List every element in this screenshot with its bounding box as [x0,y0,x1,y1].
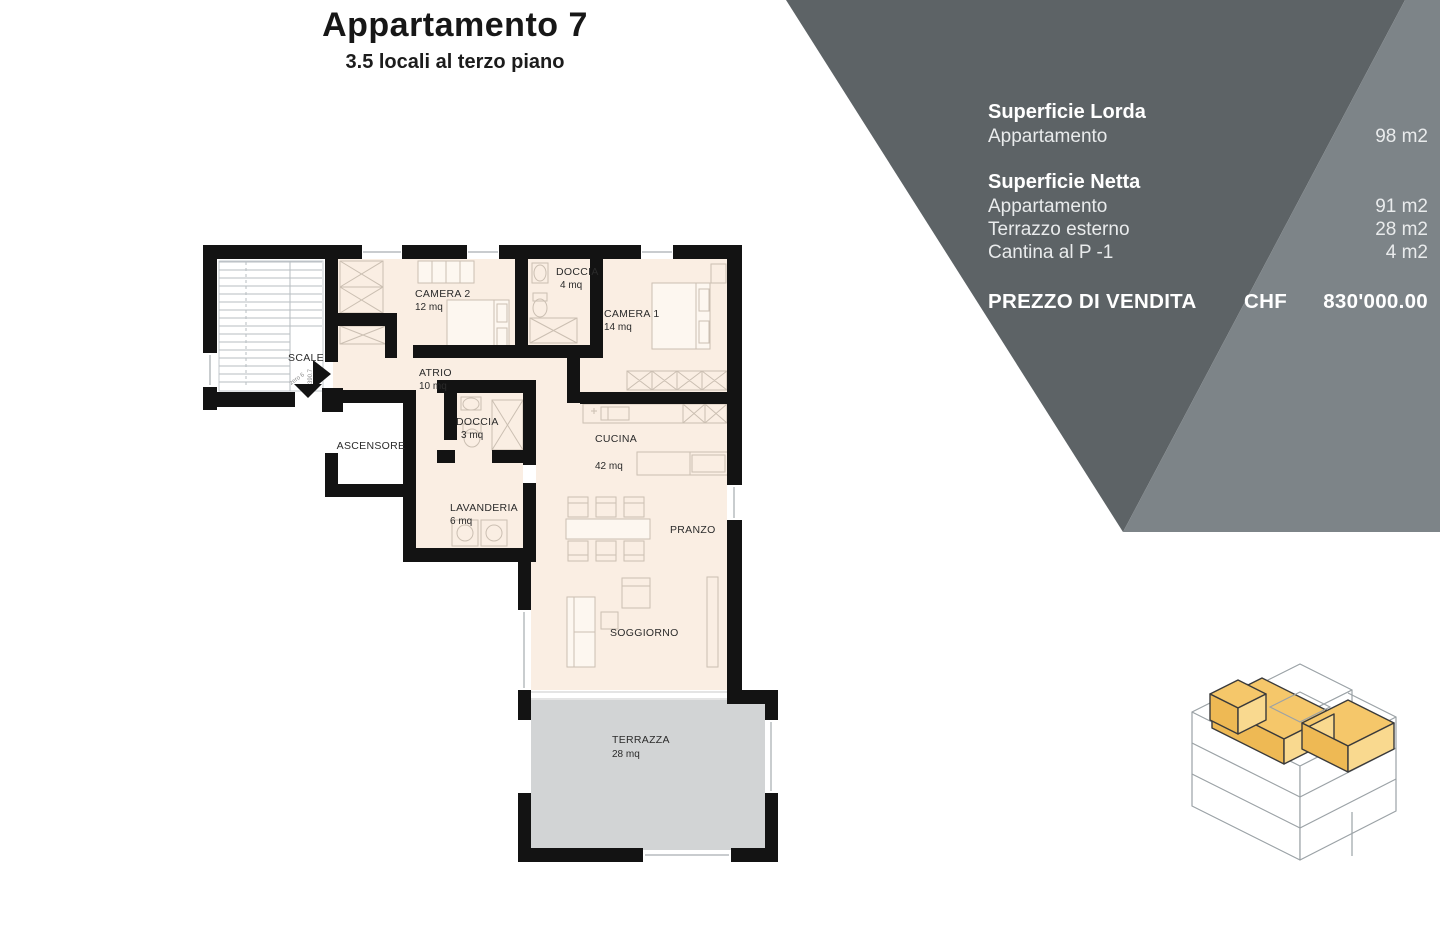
label-lavanderia-area: 6 mq [450,516,472,527]
row-value: 98 m2 [1375,126,1428,148]
price-label: PREZZO DI VENDITA [988,291,1197,313]
price-amount: 830'000.00 [1323,291,1428,313]
row-value: 4 m2 [1386,242,1428,264]
label-lavanderia: LAVANDERIA [450,502,518,514]
terrace-floor [531,700,765,850]
label-camera1: CAMERA 1 [604,308,660,320]
label-doccia3: DOCCIA [456,416,499,428]
page-title: Appartamento 7 [235,6,675,45]
label-camera2-area: 12 mq [415,302,443,313]
label-doccia4: DOCCIA [556,266,599,278]
row-label: Appartamento [988,196,1107,218]
price-currency: CHF [1244,291,1287,313]
floor-plan: SCALE ASCENSORE CAMERA 2 12 mq DOCCIA 4 … [203,245,778,862]
price-row: PREZZO DI VENDITA CHF 830'000.00 [988,291,1428,313]
page-subtitle: 3.5 locali al terzo piano [235,51,675,74]
row-cantina: Cantina al P -1 4 m2 [988,242,1428,264]
label-atrio-area: 10 mq [419,381,447,392]
label-atrio: ATRIO [419,367,452,379]
row-lorda-appartamento: Appartamento 98 m2 [988,126,1428,148]
quota-note-1: 390.7 [308,368,314,384]
title-block: Appartamento 7 3.5 locali al terzo piano [235,6,675,74]
row-terrazzo-esterno: Terrazzo esterno 28 m2 [988,219,1428,241]
label-pranzo: PRANZO [670,524,716,536]
info-panel-shape [786,0,1440,532]
header-lorda-label: Superficie Lorda [988,101,1146,123]
label-terrazza: TERRAZZA [612,734,670,746]
row-value: 28 m2 [1375,219,1428,241]
label-terrazza-area: 28 mq [612,749,640,760]
label-soggiorno: SOGGIORNO [610,627,679,639]
label-ascensore: ASCENSORE [337,440,406,452]
row-label: Appartamento [988,126,1107,148]
row-netta-appartamento: Appartamento 91 m2 [988,196,1428,218]
label-doccia4-area: 4 mq [560,280,582,291]
row-label: Cantina al P -1 [988,242,1113,264]
section-header-netta: Superficie Netta [988,171,1428,193]
label-cucina-area: 42 mq [595,461,623,472]
building-icon [1192,664,1396,860]
label-cucina: CUCINA [595,433,637,445]
row-label: Terrazzo esterno [988,219,1130,241]
label-camera2: CAMERA 2 [415,288,471,300]
label-doccia3-area: 3 mq [461,430,483,441]
header-netta-label: Superficie Netta [988,171,1140,193]
row-value: 91 m2 [1375,196,1428,218]
label-camera1-area: 14 mq [604,322,632,333]
label-scale: SCALE [288,352,324,364]
section-header-lorda: Superficie Lorda [988,101,1428,123]
